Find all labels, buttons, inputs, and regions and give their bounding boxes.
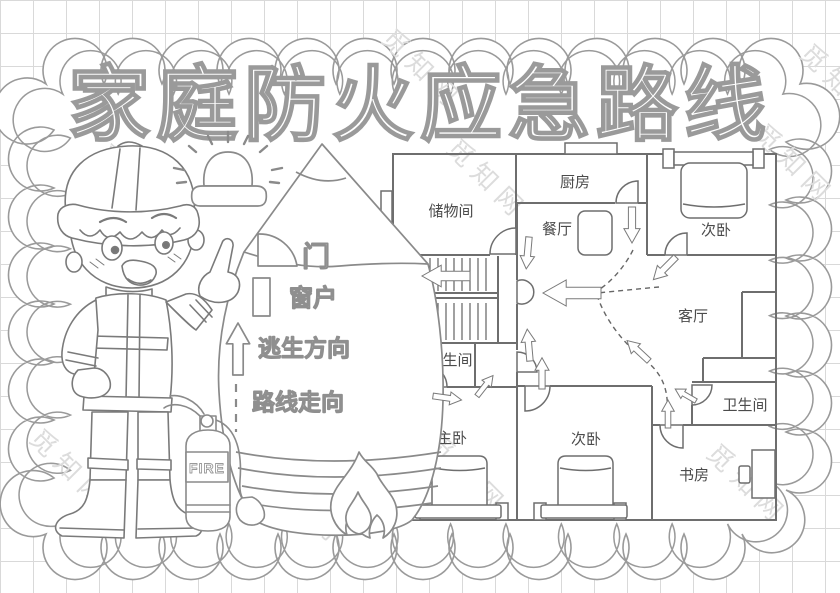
bed-footboard (415, 505, 501, 518)
legend-window-label: 窗户 (289, 284, 337, 312)
bed-icon (432, 456, 487, 507)
room-label-bedroom2-bottom: 次卧 (571, 431, 601, 448)
bed-icon (558, 456, 613, 507)
room-label-study: 书房 (679, 467, 709, 484)
drawing-canvas: 觅知网 觅知网 觅知网 觅知网 觅知网 觅知网 觅知网 觅知网 觅知网 家庭防火… (0, 0, 840, 593)
extinguisher-gauge (201, 415, 213, 427)
belt (83, 396, 172, 412)
room-label-bedroom2-top: 次卧 (701, 222, 731, 239)
chair-icon (739, 466, 750, 483)
room-label-kitchen: 厨房 (560, 174, 590, 191)
bed-post (753, 149, 764, 168)
legend-route-label: 路线走向 (252, 389, 344, 415)
ear (66, 252, 82, 272)
room-label-storage: 储物间 (428, 203, 473, 220)
window-icon (565, 143, 617, 154)
siren-base (192, 186, 267, 206)
entry-door-icon (517, 280, 534, 304)
poster-page: 觅知网 觅知网 觅知网 觅知网 觅知网 觅知网 觅知网 觅知网 觅知网 家庭防火… (0, 0, 840, 593)
desk-icon (752, 450, 775, 498)
dining-table-icon (578, 211, 612, 255)
chest-band (91, 336, 168, 350)
room-label-living: 客厅 (678, 308, 708, 325)
pupil (112, 247, 119, 254)
page-title: 家庭防火应急路线 (68, 60, 772, 151)
legend-window-icon (253, 278, 270, 316)
room-label-bath-right: 卫生间 (722, 397, 767, 414)
legend-door-label: 门 (302, 241, 330, 272)
bed-footboard (541, 505, 627, 518)
bed-post (663, 149, 674, 168)
bed-icon (681, 163, 747, 218)
extinguisher-label: FIRE (189, 460, 225, 476)
pupil (163, 242, 169, 248)
legend-escape-label: 逃生方向 (258, 335, 350, 361)
room-label-dining: 餐厅 (542, 221, 572, 238)
left-glove (72, 368, 110, 398)
